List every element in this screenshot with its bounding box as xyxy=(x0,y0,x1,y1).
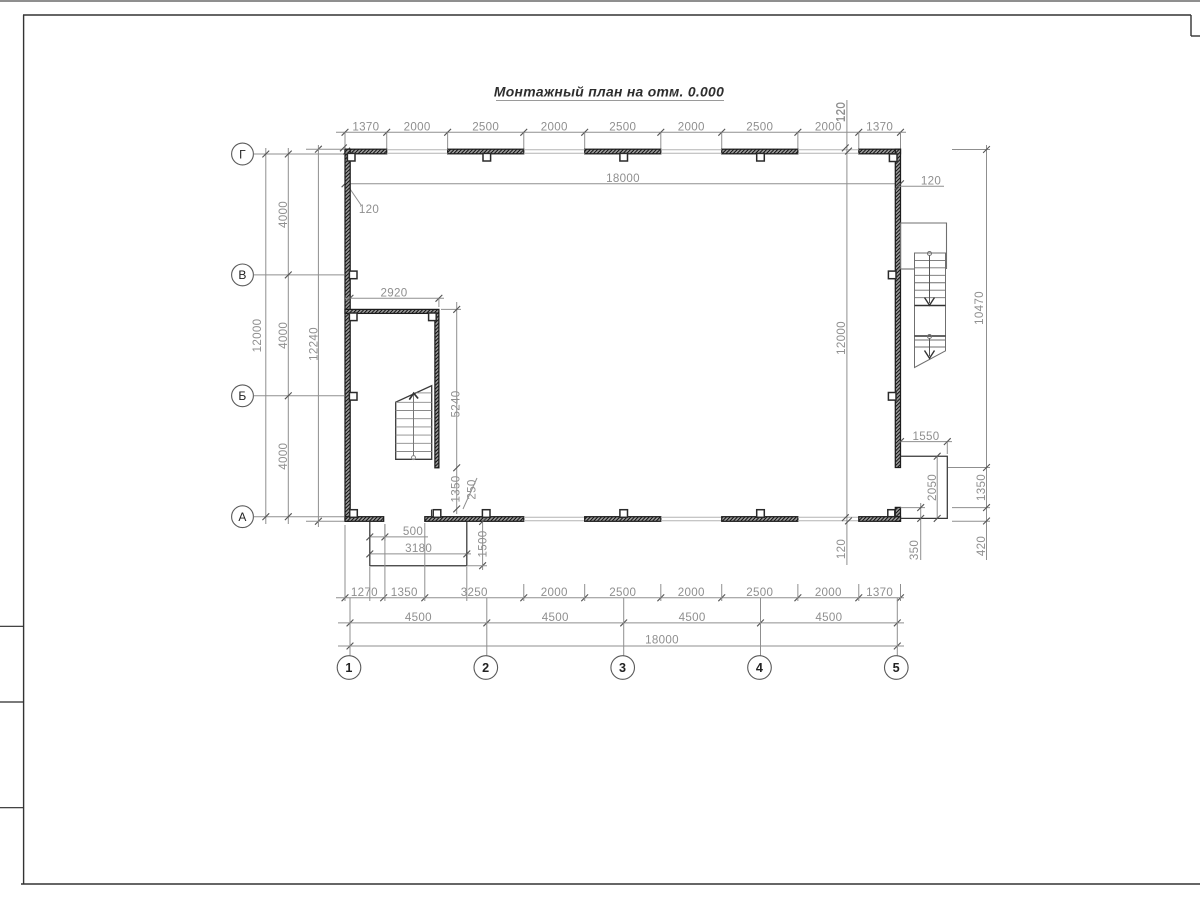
svg-text:18000: 18000 xyxy=(645,634,679,647)
svg-text:4500: 4500 xyxy=(405,611,432,624)
svg-text:5240: 5240 xyxy=(449,391,462,418)
svg-text:1370: 1370 xyxy=(866,586,893,599)
svg-text:2000: 2000 xyxy=(815,586,842,599)
svg-text:120: 120 xyxy=(835,102,848,122)
svg-text:2500: 2500 xyxy=(609,120,636,133)
svg-text:120: 120 xyxy=(359,203,379,216)
svg-text:2500: 2500 xyxy=(746,586,773,599)
svg-text:420: 420 xyxy=(975,536,988,556)
svg-text:12000: 12000 xyxy=(835,321,848,355)
svg-text:4000: 4000 xyxy=(277,322,290,349)
svg-text:1: 1 xyxy=(345,661,352,675)
svg-text:Г: Г xyxy=(239,147,246,161)
svg-text:4500: 4500 xyxy=(542,611,569,624)
svg-text:250: 250 xyxy=(466,479,479,499)
svg-text:1350: 1350 xyxy=(975,474,988,501)
svg-text:4500: 4500 xyxy=(679,611,706,624)
svg-text:А: А xyxy=(238,510,246,524)
svg-text:3180: 3180 xyxy=(405,542,432,555)
svg-text:1350: 1350 xyxy=(391,586,418,599)
svg-text:3250: 3250 xyxy=(461,586,488,599)
svg-text:10470: 10470 xyxy=(973,291,986,325)
svg-text:1370: 1370 xyxy=(352,120,379,133)
svg-text:120: 120 xyxy=(835,539,848,559)
svg-text:4: 4 xyxy=(756,661,763,675)
svg-text:2920: 2920 xyxy=(381,287,408,300)
svg-text:12000: 12000 xyxy=(251,319,264,353)
svg-text:4000: 4000 xyxy=(277,443,290,470)
svg-text:В: В xyxy=(238,268,246,282)
svg-text:2050: 2050 xyxy=(926,474,939,501)
svg-text:2500: 2500 xyxy=(746,120,773,133)
svg-text:2500: 2500 xyxy=(472,120,499,133)
svg-text:1500: 1500 xyxy=(477,531,490,558)
svg-text:1350: 1350 xyxy=(449,476,462,503)
svg-text:1550: 1550 xyxy=(913,430,940,443)
svg-text:12240: 12240 xyxy=(308,327,321,361)
svg-text:3: 3 xyxy=(619,661,626,675)
svg-text:120: 120 xyxy=(921,175,941,188)
svg-text:2000: 2000 xyxy=(541,120,568,133)
svg-text:2000: 2000 xyxy=(404,120,431,133)
svg-text:Б: Б xyxy=(238,389,246,403)
svg-text:2000: 2000 xyxy=(678,586,705,599)
svg-text:2500: 2500 xyxy=(609,586,636,599)
svg-text:350: 350 xyxy=(908,540,921,560)
svg-text:2: 2 xyxy=(482,661,489,675)
svg-text:2000: 2000 xyxy=(678,120,705,133)
svg-text:2000: 2000 xyxy=(541,586,568,599)
svg-text:1270: 1270 xyxy=(351,586,378,599)
svg-text:4000: 4000 xyxy=(277,201,290,228)
svg-text:5: 5 xyxy=(893,661,900,675)
svg-text:18000: 18000 xyxy=(606,172,640,185)
svg-text:4500: 4500 xyxy=(815,611,842,624)
svg-text:Монтажный план на отм. 0.000: Монтажный план на отм. 0.000 xyxy=(494,84,724,100)
svg-text:500: 500 xyxy=(403,525,423,538)
svg-text:1370: 1370 xyxy=(866,120,893,133)
